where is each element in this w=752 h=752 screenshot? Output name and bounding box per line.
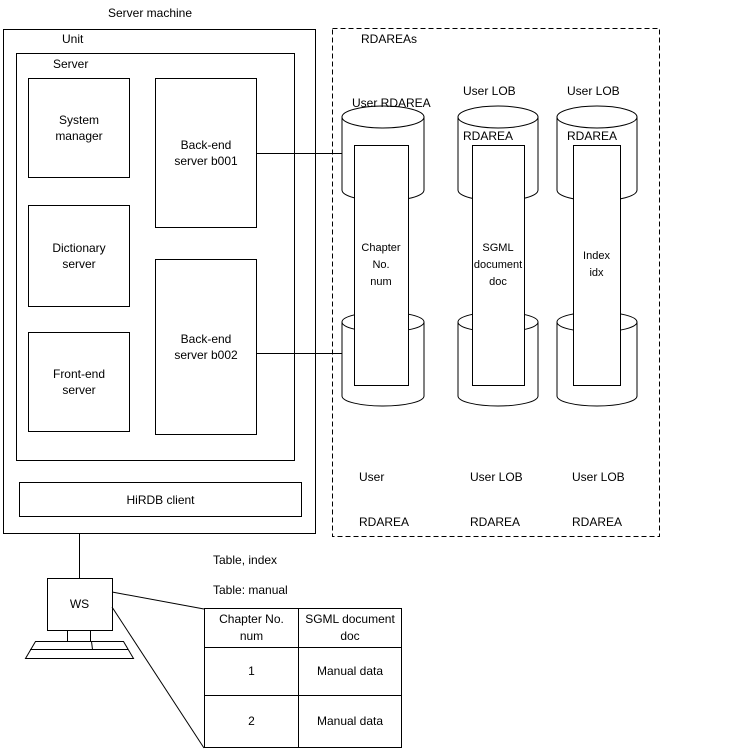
dictionary-server-box: Dictionary server bbox=[28, 205, 130, 307]
rdarea-1-top-label-line1: User RDAREA bbox=[352, 96, 431, 111]
table-row-1-data: Manual data bbox=[298, 647, 401, 695]
table-row-1-chapter-value: 1 bbox=[248, 663, 255, 680]
system-manager-label-line1: System bbox=[59, 112, 99, 128]
rdarea-1-bottom-label-line2: RDAREA bbox=[359, 515, 409, 530]
rdarea-2-object-line3: doc bbox=[489, 274, 507, 291]
rdarea-1-bottom-label-line1: User bbox=[359, 470, 409, 485]
rdarea-3-bottom-label-line1: User LOB bbox=[572, 470, 625, 485]
table-row-1-chapter: 1 bbox=[205, 647, 298, 695]
rdarea-3-bottom-label: User LOB RDAREA bbox=[572, 440, 625, 560]
rdarea-2-bottom-label: User LOB RDAREA bbox=[470, 440, 523, 560]
table-caption-index: Table, index bbox=[213, 553, 277, 568]
rdarea-2-object-line1: SGML bbox=[482, 240, 513, 257]
rdarea-1-object-line1: Chapter bbox=[361, 240, 400, 257]
table-header-sgml-line2: doc bbox=[340, 628, 359, 645]
server-label: Server bbox=[53, 57, 88, 72]
rdarea-2-top-label-line1: User LOB bbox=[463, 84, 516, 99]
table-header-sgml-line1: SGML document bbox=[305, 611, 395, 628]
table-row-2-chapter: 2 bbox=[205, 695, 298, 747]
table-header-sgml: SGML document doc bbox=[298, 609, 401, 647]
table-header-chapter: Chapter No. num bbox=[205, 609, 298, 647]
rdarea-3-object-line2: idx bbox=[589, 265, 603, 282]
back-end-server-b002-box: Back-end server b002 bbox=[155, 259, 257, 435]
back-end-server-b002-label-line1: Back-end bbox=[181, 331, 232, 347]
ws-label-wrap: WS bbox=[47, 578, 112, 630]
rdarea-3-object-line1: Index bbox=[583, 248, 610, 265]
rdarea-2-object-line2: document bbox=[474, 257, 522, 274]
rdarea-1-object-text: Chapter No. num bbox=[354, 145, 408, 385]
ws-label: WS bbox=[70, 596, 89, 613]
back-end-server-b002-label-line2: server b002 bbox=[174, 347, 237, 363]
front-end-server-label-line1: Front-end bbox=[53, 366, 105, 382]
back-end-server-b001-label-line1: Back-end bbox=[181, 137, 232, 153]
table-header-chapter-line2: num bbox=[240, 628, 263, 645]
rdarea-3-bottom-label-line2: RDAREA bbox=[572, 515, 625, 530]
table-row-1-data-value: Manual data bbox=[317, 663, 383, 680]
rdarea-3-object-text: Index idx bbox=[573, 145, 620, 385]
rdarea-2-top-label-line2: RDAREA bbox=[463, 129, 516, 144]
rdareas-label: RDAREAs bbox=[361, 32, 417, 47]
table-header-chapter-line1: Chapter No. bbox=[219, 611, 284, 628]
back-end-server-b001-label-line2: server b001 bbox=[174, 153, 237, 169]
front-end-server-label-line2: server bbox=[62, 382, 95, 398]
table-caption-manual: Table: manual bbox=[213, 583, 288, 598]
rdarea-2-object-text: SGML document doc bbox=[472, 145, 524, 385]
diagram-title: Server machine bbox=[0, 6, 300, 20]
rdarea-1-object-line3: num bbox=[370, 274, 391, 291]
dictionary-server-label-line2: server bbox=[62, 256, 95, 272]
rdarea-2-bottom-label-line1: User LOB bbox=[470, 470, 523, 485]
rdarea-1-object-line2: No. bbox=[372, 257, 389, 274]
unit-label: Unit bbox=[62, 32, 83, 47]
rdarea-3-top-label-line2: RDAREA bbox=[567, 129, 620, 144]
rdarea-1-bottom-label: User RDAREA bbox=[359, 440, 409, 560]
system-manager-label-line2: manager bbox=[55, 128, 102, 144]
manual-table: Chapter No. num SGML document doc 1 Manu… bbox=[204, 608, 402, 748]
rdarea-2-bottom-label-line2: RDAREA bbox=[470, 515, 523, 530]
callout-line-top bbox=[112, 592, 204, 609]
system-manager-box: System manager bbox=[28, 78, 130, 178]
table-row-2-data: Manual data bbox=[298, 695, 401, 747]
hirdb-client-box: HiRDB client bbox=[19, 482, 302, 517]
table-row-2-data-value: Manual data bbox=[317, 713, 383, 730]
callout-line-bottom bbox=[112, 607, 204, 748]
rdarea-3-top-label-line1: User LOB bbox=[567, 84, 620, 99]
back-end-server-b001-box: Back-end server b001 bbox=[155, 78, 257, 228]
hirdb-client-label: HiRDB client bbox=[126, 492, 194, 508]
architecture-diagram: Server machine Unit Server System manage… bbox=[0, 0, 752, 752]
table-row-2-chapter-value: 2 bbox=[248, 713, 255, 730]
dictionary-server-label-line1: Dictionary bbox=[52, 240, 105, 256]
front-end-server-box: Front-end server bbox=[28, 332, 130, 432]
